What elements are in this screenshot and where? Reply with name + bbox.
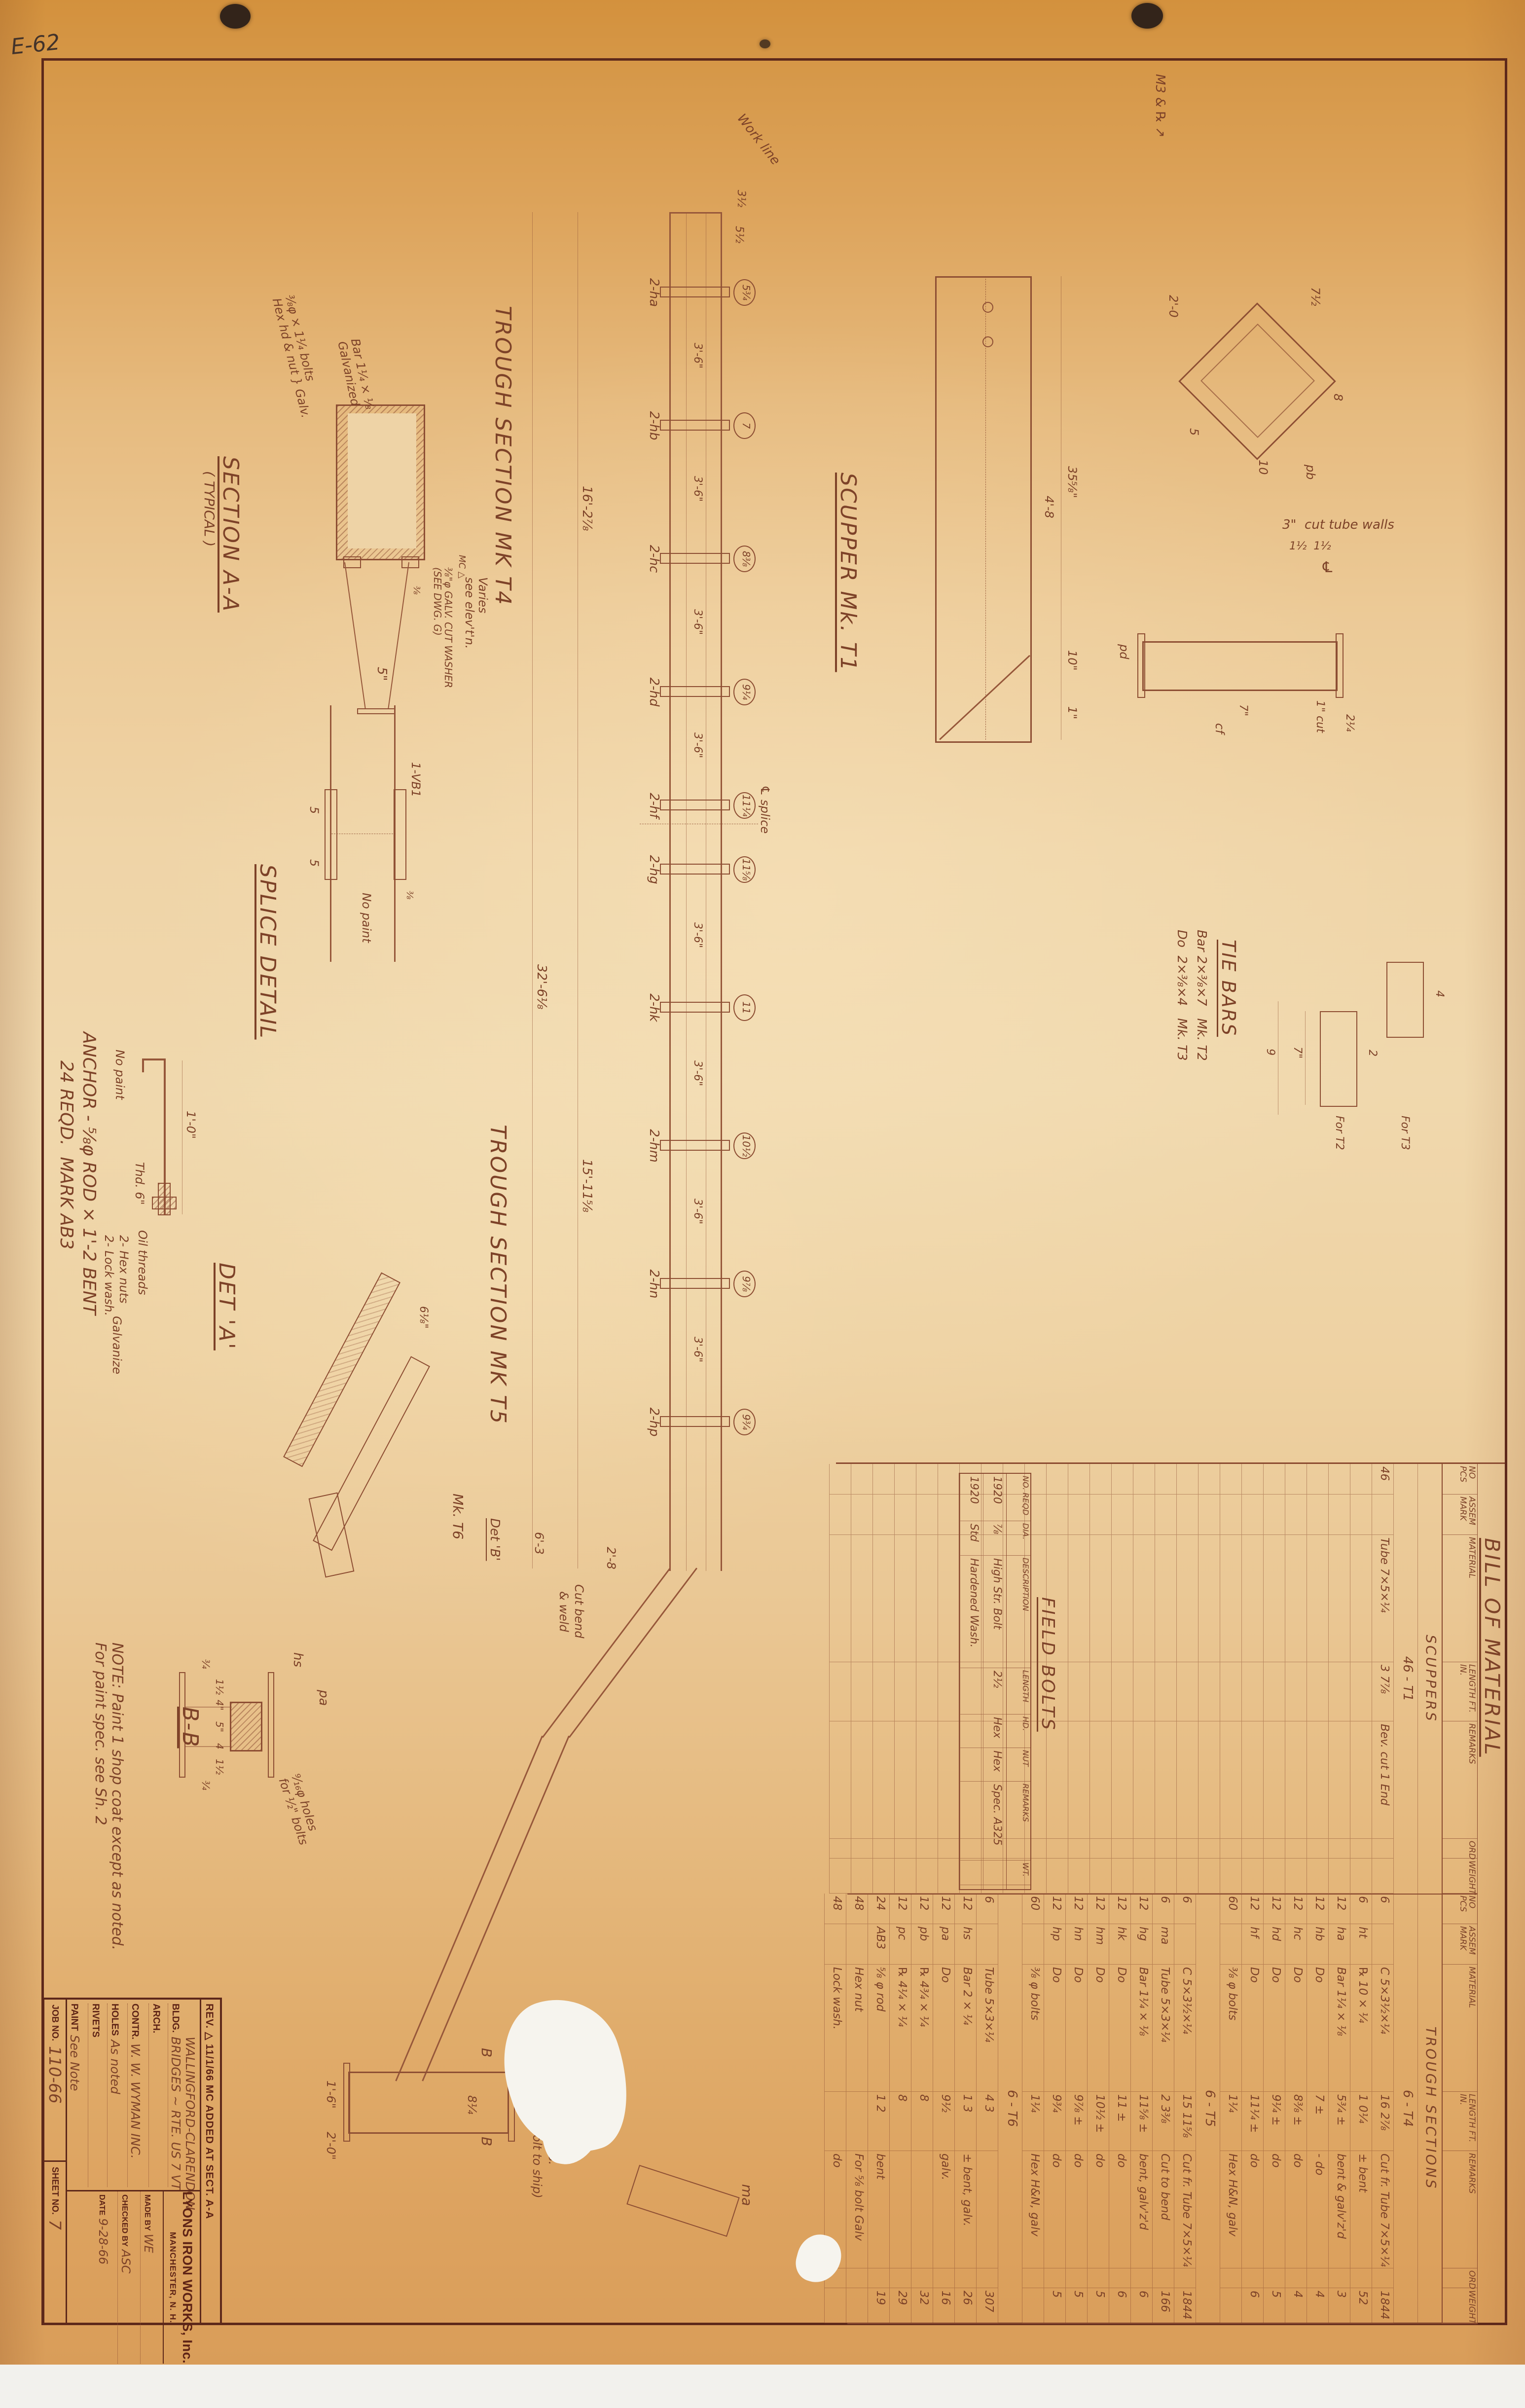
- bom-cell: Hex H&N, galv: [1022, 2151, 1044, 2268]
- bom-cell: [1264, 1859, 1285, 1894]
- girder-tie: [660, 864, 730, 875]
- bom-cell: hs: [955, 1924, 976, 1965]
- bom-cell: bent & galv'z'd: [1329, 2151, 1350, 2268]
- bom-data-row: [1111, 1464, 1133, 1894]
- bom-cell: do: [1109, 2151, 1130, 2268]
- bom-data-row: 24AB3⅝ φ rod1 2bent19: [868, 1894, 889, 2323]
- note-washer: ⅜"φ GALV. CUT WASHER(SEE DWG. G): [432, 567, 454, 688]
- bom-cell: [1174, 2268, 1196, 2288]
- bom-cell: [1307, 1464, 1328, 1495]
- section-cut-b: B: [479, 2048, 494, 2057]
- bom-col-header: WEIGHT: [1443, 1859, 1477, 1894]
- rivets-label: RIVETS: [88, 2004, 101, 2042]
- bom-col-header: REMARKS: [1443, 2151, 1477, 2268]
- bom-cell: Cut fr. Tube 7×5×¼ 32'-6: [1174, 2151, 1196, 2268]
- made-by-value: WE: [141, 2234, 155, 2253]
- date-value: 9-28-66: [95, 2218, 110, 2264]
- bom-cell: ± bent, galv.: [955, 2151, 976, 2268]
- note-cut-tube-walls: 3" cut tube walls: [1282, 518, 1394, 532]
- dim-10-scupper: 10: [1256, 460, 1270, 475]
- bom-cell: 8⅜ ±: [1285, 2092, 1307, 2151]
- bom-col-header: ASSEM MARK: [1443, 1495, 1477, 1535]
- bom-cell: [1350, 2268, 1372, 2288]
- bom-cell: Do: [933, 1965, 954, 2092]
- field-bolts-cell: Std: [960, 1521, 983, 1556]
- bom-cell: [1220, 1721, 1241, 1839]
- bom-data-row: 60⅜ φ bolts1¼Hex H&N, galv: [1022, 1894, 1044, 2323]
- bom-cell: [1177, 1662, 1198, 1721]
- bom-cell: [1307, 2268, 1328, 2288]
- bom-cell: [1242, 2268, 1263, 2288]
- weld-mark: ⅜: [404, 891, 414, 899]
- bom-cell: hf: [1242, 1924, 1263, 1965]
- bom-cell: [1307, 1859, 1328, 1894]
- bom-data-row: [1263, 1464, 1285, 1894]
- bom-data-row: 46Tube 7×5×¼3 7⅞Bev. cut 1 End: [1372, 1464, 1393, 1894]
- bom-cell: [916, 1839, 938, 1859]
- field-bolts-cell: [960, 1668, 983, 1715]
- field-bolts-cell: [983, 1861, 1006, 1885]
- bom-cell: - do: [1307, 2151, 1328, 2268]
- bom-cell: Cut fr. Tube 7×5×¼ 32'-6: [1372, 2151, 1393, 2268]
- bom-cell: [825, 2288, 846, 2323]
- bom-cell: hc: [1285, 1924, 1307, 1965]
- field-bolts-col-header: LENGTH: [1007, 1668, 1030, 1715]
- bom-cell: 15 11⅝: [1174, 2092, 1196, 2151]
- bom-cell: [825, 2092, 846, 2151]
- bom-data-row: 12hbDo7 ±- do4: [1307, 1894, 1328, 2323]
- bom-cell: [846, 2288, 868, 2323]
- bom-cell: [1155, 1662, 1176, 1721]
- bom-cell: [846, 2268, 868, 2288]
- bom-cell: [1329, 1662, 1350, 1721]
- note-galvanize: Galvanize: [110, 1316, 123, 1374]
- bom-cell: [1307, 1721, 1328, 1839]
- bom-cell: [1131, 2268, 1152, 2288]
- bom-cell: 1 2: [868, 2092, 889, 2151]
- bom-data-row: 12pb℞ 4¾ × ¼832: [911, 1894, 933, 2323]
- bom-cell: Tube 5×3×¼: [1153, 1965, 1174, 2092]
- bom-cell: 7 ±: [1307, 2092, 1328, 2151]
- bom-cell: 9¾: [1044, 2092, 1065, 2151]
- bom-data-row: [1220, 1464, 1241, 1894]
- bom-cell: [1022, 2268, 1044, 2288]
- tie-bar-t2: [1320, 1011, 1357, 1107]
- bom-cell: hk: [1109, 1924, 1130, 1965]
- bom-cell: [1177, 1721, 1198, 1839]
- bom-cell: ht: [1350, 1924, 1372, 1965]
- bom-cell: 2 3⅜: [1153, 2092, 1174, 2151]
- field-made-by: MADE BY WE: [140, 2191, 163, 2364]
- bom-cell: ⅝ φ rod: [868, 1965, 889, 2092]
- girder-tie-mark: 2-hd: [647, 670, 661, 714]
- note-weld: & weld: [557, 1591, 570, 1632]
- bom-cell: [938, 1662, 959, 1721]
- bom-section-row: SCUPPERS: [1417, 1464, 1442, 1894]
- bom-cell: [1372, 1495, 1393, 1535]
- contr-value: W. W. WYMAN INC.: [128, 2043, 143, 2159]
- bom-cell: [1133, 1662, 1155, 1721]
- field-bolts-cell: 1920: [960, 1474, 983, 1521]
- bom-data-row: 6C 5×3½×¼15 11⅝Cut fr. Tube 7×5×¼ 32'-61…: [1174, 1894, 1196, 2323]
- bom-cell: [1155, 1535, 1176, 1662]
- dims-cut-tube: 1½ 1½: [1289, 541, 1331, 553]
- bom-cell: [1242, 1839, 1263, 1859]
- note-no-paint-splice: No paint: [360, 893, 373, 943]
- bom-cell: [1090, 1859, 1111, 1894]
- girder-spacing-dim: 3'-6": [691, 732, 703, 758]
- bom-cell: [1350, 1662, 1372, 1721]
- bom-cell: AB3: [868, 1924, 889, 1965]
- bom-col-header: WEIGHT: [1443, 2288, 1477, 2323]
- bom-cell: [851, 1495, 872, 1535]
- bom-cell: [1242, 1535, 1263, 1662]
- girder-tie-mark: 2-hp: [647, 1400, 661, 1444]
- anchor-hook: [142, 1058, 166, 1060]
- bom-cell: [916, 1464, 938, 1495]
- bom-data-row: [1241, 1464, 1263, 1894]
- field-bolts-col-header: WT.: [1007, 1861, 1030, 1885]
- field-checked-by: CHECKED BY ASC: [117, 2191, 140, 2364]
- bom-cell: [1155, 1859, 1176, 1894]
- bom-cell: Bev. cut 1 End: [1372, 1721, 1393, 1839]
- field-bolts-cell: 2½: [983, 1668, 1006, 1715]
- punch-hole: [220, 4, 251, 29]
- note-no-paint-anchor: No paint: [113, 1050, 126, 1100]
- company-city: MANCHESTER, N. H.: [163, 2191, 180, 2364]
- dim-line-overall: [532, 212, 533, 1569]
- bom-cell: [895, 1464, 916, 1495]
- bom-cell: 12: [1109, 1894, 1130, 1924]
- bom-cell: 12: [1329, 1894, 1350, 1924]
- paint-note: NOTE: Paint 1 shop coat except as noted.…: [92, 1642, 125, 1950]
- bom-cell: [1220, 1924, 1241, 1965]
- bom-cell: 12: [1088, 1894, 1109, 1924]
- dim-2-0: 2'-0": [324, 2132, 337, 2160]
- girder-tie-value: 8⅜: [733, 546, 756, 572]
- bom-cell: 10½ ±: [1088, 2092, 1109, 2151]
- weld-mark: ⅜: [411, 586, 421, 594]
- bom-cell: [1047, 1721, 1068, 1839]
- bom-cell: [873, 1721, 894, 1839]
- girder-tie: [660, 1416, 730, 1427]
- bolt-hole: [982, 336, 993, 347]
- section-aa-channel-core: [348, 413, 416, 548]
- bom-header: NO PCSASSEM MARKMATERIALLENGTH FT. IN.RE…: [1442, 1894, 1478, 2323]
- bom-cell: [1022, 2288, 1044, 2323]
- bom-cell: [1068, 1839, 1089, 1859]
- bom-cell: [977, 1924, 998, 1965]
- bom-data-row: 48Hex nutFor ⅝ bolt Galv: [846, 1894, 868, 2323]
- bom-cell: [1090, 1721, 1111, 1839]
- tie-dim-9: 9: [1264, 1049, 1276, 1056]
- bldg-value-1: WALLINGFORD-CLARENDON: [183, 2037, 197, 2210]
- bom-cell: [1220, 1495, 1241, 1535]
- bom-cell: [938, 1721, 959, 1839]
- girder-tie: [660, 1002, 730, 1013]
- bom-cell: [1285, 1859, 1307, 1894]
- bb-dim-34: ¾: [200, 1659, 211, 1669]
- bom-cell: [1350, 1839, 1372, 1859]
- bom-cell: [895, 1495, 916, 1535]
- mark-pa: pa: [316, 1690, 330, 1706]
- bom-cell: [1350, 1464, 1372, 1495]
- dim-5a: 5: [307, 806, 321, 814]
- bom-cell: do: [1285, 2151, 1307, 2268]
- bom-cell: C 5×3½×¼: [1372, 1965, 1393, 2092]
- bom-cell: [1307, 1662, 1328, 1721]
- bom-cell: 307: [977, 2288, 998, 2323]
- field-bldg: BLDG. WALLINGFORD-CLARENDONBRIDGES ~ RTE…: [168, 2004, 199, 2187]
- bom-cell: [895, 1859, 916, 1894]
- bom-cell: [1372, 2268, 1393, 2288]
- dim-line: [182, 1060, 182, 1214]
- bom-data-row: 60⅜ φ bolts1¼Hex H&N, galv: [1220, 1894, 1241, 2323]
- bom-cell: [1047, 1495, 1068, 1535]
- bom-cell: [1198, 1495, 1220, 1535]
- bom-cell: 48: [846, 1894, 868, 1924]
- girder-tie-mark: 2-hf: [647, 783, 661, 828]
- bom-cell: 11 ±: [1109, 2092, 1130, 2151]
- bom-cell: do: [1242, 2151, 1263, 2268]
- bom-cell: ⅜ φ bolts: [1022, 1965, 1044, 2092]
- field-bolts-table: NO. REQDDIA.DESCRIPTIONLENGTHHD.NUTREMAR…: [959, 1473, 1031, 1890]
- girder-tie-value: 9¼: [733, 679, 756, 705]
- bom-cell: [1285, 1721, 1307, 1839]
- bom-cell: [1220, 1535, 1241, 1662]
- bom-data-row: 6Tube 5×3×¼4 3307: [976, 1894, 998, 2323]
- date-label: DATE: [95, 2194, 106, 2218]
- bom-cell: [830, 1495, 851, 1535]
- field-bolts-cell: [960, 1861, 983, 1885]
- bom-cell: [938, 1839, 959, 1859]
- bom-cell: [825, 1924, 846, 1965]
- dim-line: [1305, 1011, 1306, 1105]
- girder-tie-mark: 2-hk: [647, 985, 661, 1030]
- bom-cell: For ⅝ bolt Galv: [846, 2151, 868, 2268]
- scupper-end-plate: [1336, 633, 1343, 698]
- bom-title: BILL OF MATERIAL: [1481, 1538, 1504, 1757]
- field-bolts-cell: ⅞: [983, 1521, 1006, 1556]
- field-arch: ARCH.: [148, 2004, 168, 2187]
- bom-cell: [955, 2268, 976, 2288]
- bom-cell: [868, 2268, 889, 2288]
- note-cut-bend: Cut bend: [572, 1584, 585, 1638]
- bom-cell: [1177, 1495, 1198, 1535]
- field-bolts-col-header: NUT: [1007, 1748, 1030, 1782]
- bom-cell: 12: [1307, 1894, 1328, 1924]
- bom-cell: 8: [911, 2092, 933, 2151]
- bom-cell: [1372, 1924, 1393, 1965]
- girder-tie: [660, 553, 730, 564]
- bom-col-header: LENGTH FT. IN.: [1443, 1662, 1477, 1721]
- bom-cell: [1133, 1464, 1155, 1495]
- bom-cell: [1044, 2268, 1065, 2288]
- bom-cell: 8: [890, 2092, 911, 2151]
- note-m3-pl: M3 & ℞ ↗: [1153, 74, 1167, 138]
- bom-cell: [1220, 2288, 1241, 2323]
- bom-cell: [1307, 1839, 1328, 1859]
- field-sheet-no: SHEET NO. 7: [44, 2160, 66, 2323]
- bom-section-row: TROUGH SECTIONS: [1417, 1894, 1442, 2323]
- bom-cell: [1285, 1495, 1307, 1535]
- label-section-aa: SECTION A-A: [218, 456, 243, 613]
- bom-cell: [1285, 1662, 1307, 1721]
- bom-cell: ℞ 4¼ × ¼: [890, 1965, 911, 2092]
- bb-dim: 5": [214, 1721, 225, 1732]
- girder-tie: [660, 287, 730, 297]
- dim-15-11-5-8: 15'-11⅝: [580, 1159, 594, 1212]
- bom-cell: [1198, 1535, 1220, 1662]
- bom-cell: 4 3: [977, 2092, 998, 2151]
- label-anchor-1: ANCHOR - ⅝φ ROD × 1'-2 BENT: [79, 1032, 99, 1315]
- girder-tie-value: 11: [733, 994, 756, 1021]
- label-splice-detail: SPLICE DETAIL: [255, 864, 280, 1040]
- bom-cell: [916, 1721, 938, 1839]
- bom-data-row: [872, 1464, 894, 1894]
- dim-6-3: 6'-3: [532, 1532, 545, 1555]
- bom-cell: ℞ 10 × ¼: [1350, 1965, 1372, 2092]
- bom-data-row: 12hpDo9¾do5: [1044, 1894, 1065, 2323]
- centerline-splice-label: ℄ splice: [758, 785, 771, 834]
- bolt-hole: [982, 302, 993, 313]
- bom-cell: 12: [890, 1894, 911, 1924]
- bom-cell: [873, 1535, 894, 1662]
- bom-cell: [1264, 1464, 1285, 1495]
- bom-cell: [1350, 1721, 1372, 1839]
- bom-cell: [846, 1924, 868, 1965]
- girder-tie-value: 5¾: [733, 279, 756, 306]
- girder-tie-mark: 2-ha: [647, 270, 661, 315]
- bom-data-row: [938, 1464, 959, 1894]
- bom-cell: 12: [1066, 1894, 1087, 1924]
- dim-line: [578, 824, 578, 1569]
- bom-cell: 3: [1329, 2288, 1350, 2323]
- bom-cell: [1047, 1464, 1068, 1495]
- bom-data-row: [1307, 1464, 1328, 1894]
- bom-cell: [1155, 1464, 1176, 1495]
- bom-cell: [1068, 1721, 1089, 1839]
- bom-cell: Cut to bend: [1153, 2151, 1174, 2268]
- bom-cell: [916, 1495, 938, 1535]
- bom-cell: [1133, 1721, 1155, 1839]
- bom-cell: [1090, 1464, 1111, 1495]
- bom-cell: [938, 1495, 959, 1535]
- bom-cell: 46: [1372, 1464, 1393, 1495]
- bom-cell: [1264, 1662, 1285, 1721]
- bom-col-header: LENGTH FT. IN.: [1443, 2092, 1477, 2151]
- bom-cell: [933, 2268, 954, 2288]
- bom-cell: [1198, 1464, 1220, 1495]
- bom-cell: 16: [933, 2288, 954, 2323]
- note-varies: Variessee elev't'n.: [463, 577, 489, 649]
- dim-2-8: 2'-8: [604, 1547, 617, 1569]
- bom-cell: [1068, 1859, 1089, 1894]
- bom-cell: do: [1088, 2151, 1109, 2268]
- label-anchor-2: 24 REQD. MARK AB3: [56, 1060, 76, 1249]
- bom-data-row: [1350, 1464, 1372, 1894]
- bom-col-header: ORD: [1443, 1839, 1477, 1859]
- bom-cell: do: [1044, 2151, 1065, 2268]
- bom-cell: hn: [1066, 1924, 1087, 1965]
- bom-data-row: [916, 1464, 938, 1894]
- girder-tie: [660, 800, 730, 810]
- title-block: REV. △ 11/1/66 MC ADDED AT SECT. A-A BLD…: [42, 1998, 222, 2325]
- girder-tie: [660, 686, 730, 697]
- bom-cell: 12: [1264, 1894, 1285, 1924]
- bom-cell: [1285, 1535, 1307, 1662]
- bom-cell: [1198, 1721, 1220, 1839]
- bom-cell: [890, 2151, 911, 2268]
- bom-cell: [1220, 1839, 1241, 1859]
- dim-16-2-7-8: 16'-2⅞: [580, 486, 594, 531]
- bom-cell: [830, 1721, 851, 1839]
- bom-cell: [1112, 1839, 1133, 1859]
- bom-col-header: REMARKS: [1443, 1721, 1477, 1839]
- bom-cell: [1220, 2268, 1241, 2288]
- bom-cell: [1068, 1662, 1089, 1721]
- bb-plate: [268, 1672, 274, 1778]
- bom-cell: [938, 1464, 959, 1495]
- field-bolts-cell: Hex: [983, 1715, 1006, 1748]
- label-scupper: SCUPPER Mk. T1: [836, 473, 860, 672]
- paint-label: PAINT: [67, 2004, 79, 2035]
- bom-cell: 9½: [933, 2092, 954, 2151]
- dim-det-a: 6⅛": [417, 1306, 429, 1328]
- bom-data-row: [1089, 1464, 1111, 1894]
- bom-data-row: [1176, 1464, 1198, 1894]
- field-bolts-cell: 1920: [983, 1474, 1006, 1521]
- bldg-value: WALLINGFORD-CLARENDONBRIDGES ~ RTE. US 7…: [168, 2037, 197, 2210]
- bom-cell: 12: [955, 1894, 976, 1924]
- bom-cell: C 5×3½×¼: [1174, 1965, 1196, 2092]
- girder-tie-mark: 2-hb: [647, 403, 661, 448]
- bom-cell: 5¾ ±: [1329, 2092, 1350, 2151]
- bom-cell: [830, 1535, 851, 1662]
- bom-cell: [851, 1662, 872, 1721]
- bldg-label: BLDG.: [168, 2004, 181, 2037]
- bom-cell: [1220, 1859, 1241, 1894]
- bom-cell: 4: [1307, 2288, 1328, 2323]
- bom-group-row: 6 - T4: [1393, 1894, 1417, 2323]
- bom-cell: [1088, 2268, 1109, 2288]
- bom-cell: 12: [1285, 1894, 1307, 1924]
- splice-joint: [331, 834, 396, 834]
- girder-bottom-line: [669, 212, 671, 1571]
- dim-line: [578, 212, 578, 824]
- bom-cell: [1198, 1839, 1220, 1859]
- bom-cell: 19: [868, 2288, 889, 2323]
- field-bolts-cell: Hex: [983, 1748, 1006, 1782]
- bom-data-row: 12hgBar 1¼ × ⅛11⅝ ±bent, galv'z'd6: [1130, 1894, 1152, 2323]
- dim-5half: 5½: [732, 226, 745, 243]
- tie-bar-t3: [1386, 962, 1424, 1038]
- bom-data-row: [1155, 1464, 1176, 1894]
- field-bolts-cell: [960, 1782, 983, 1861]
- dim-1in: 1": [1065, 706, 1079, 719]
- bom-cell: ⅜ φ bolts: [1220, 1965, 1241, 2092]
- bom-data-row: [829, 1464, 851, 1894]
- field-bolts-col-header: REMARKS: [1007, 1782, 1030, 1861]
- bom-data-row: 6maTube 5×3×¼2 3⅜Cut to bend166: [1152, 1894, 1174, 2323]
- bom-rows: SCUPPERS46 - T146Tube 7×5×¼3 7⅞Bev. cut …: [829, 1464, 1442, 1894]
- bom-cell: [895, 1535, 916, 1662]
- scupper-plan: [935, 276, 1032, 743]
- note-1in-cut: 1" cut: [1313, 700, 1326, 733]
- bom-cell: hm: [1088, 1924, 1109, 1965]
- mark-pb: pb: [1304, 465, 1317, 479]
- bom-col-header: MATERIAL: [1443, 1965, 1477, 2092]
